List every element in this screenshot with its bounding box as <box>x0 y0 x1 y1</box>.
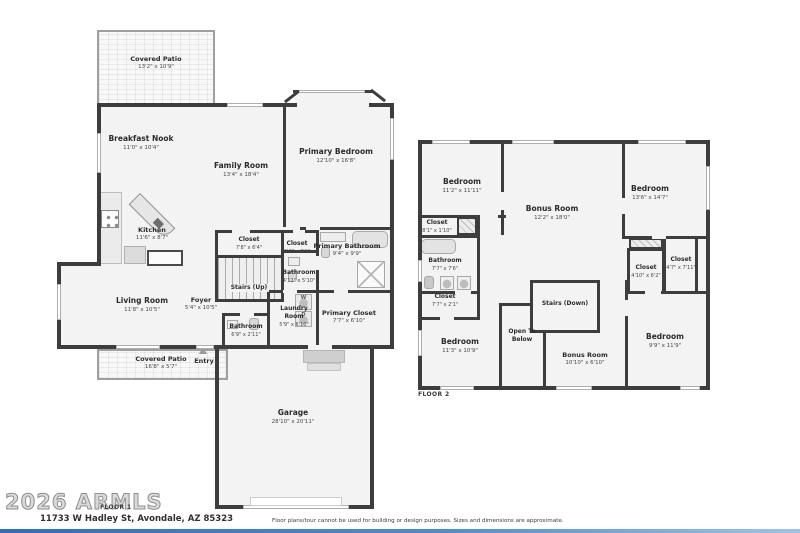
bay-window <box>299 90 365 93</box>
door-gap <box>645 291 661 294</box>
sink-icon <box>457 276 471 290</box>
window <box>556 386 592 390</box>
wall <box>97 103 297 107</box>
garage-step <box>307 363 341 371</box>
garage-door-inset <box>250 497 342 506</box>
window <box>116 345 160 349</box>
toilet-icon <box>424 276 434 289</box>
door-gap <box>293 230 305 233</box>
bottom-accent-bar <box>0 529 800 533</box>
room-label-breakfast-nook: Breakfast Nook 11'0" x 10'4" <box>91 134 191 152</box>
room-label-stairs-down: Stairs (Down) <box>532 290 598 311</box>
window <box>390 118 394 160</box>
room-label-hall-closet: Closet 7'8" x 6'4" <box>219 236 279 251</box>
vanity-icon <box>288 257 300 266</box>
washer-label: W <box>295 295 312 301</box>
room-label-covered-patio-top: Covered Patio 13'2" x 10'9" <box>106 55 206 72</box>
window <box>227 103 263 107</box>
property-address: 11733 W Hadley St, Avondale, AZ 85323 <box>40 514 233 524</box>
room-label-entry: Entry <box>186 357 222 365</box>
garage-entry-door-gap <box>308 345 332 349</box>
window <box>432 140 470 144</box>
door-gap <box>480 215 498 218</box>
room-label-closet-left: Closet 8'1" x 1'10" <box>408 219 466 234</box>
door-gap <box>232 230 250 233</box>
room-label-bonus-room: Bonus Room 12'2" x 18'0" <box>502 204 602 222</box>
room-label-primary-bathroom: Primary Bathroom 9'4" x 9'9" <box>307 242 387 259</box>
room-label-stairs-up: Stairs (Up) <box>218 274 280 295</box>
door-gap <box>240 313 254 316</box>
fridge-icon <box>124 246 146 264</box>
room-label-bonus-room-b: Bonus Room 10'10" x 6'10" <box>535 351 635 368</box>
room-label-kitchen: Kitchen 11'6" x 8'7" <box>112 226 192 243</box>
room-label-bedroom-tl: Bedroom 11'2" x 11'11" <box>412 177 512 195</box>
window <box>706 166 710 210</box>
bay-window-fill <box>295 92 371 106</box>
kitchen-peninsula <box>147 250 183 266</box>
room-label-closet-left2: Closet 7'7" x 2'1" <box>416 293 474 308</box>
room-label-primary-closet: Primary Closet 7'7" x 6'10" <box>309 309 389 326</box>
door-gap <box>334 290 348 293</box>
bay-wall <box>370 89 386 102</box>
window <box>680 386 700 390</box>
bathtub-icon <box>421 239 456 254</box>
wall <box>267 290 270 349</box>
front-door <box>196 345 214 349</box>
armls-branding: 2026 ARMLS <box>5 490 163 514</box>
room-label-primary-bedroom: Primary Bedroom 12'10" x 16'8" <box>286 147 386 165</box>
floorplan-page: W D Covered Patio 13'2" x 10'9" Breakfas… <box>0 0 800 533</box>
door-gap <box>306 227 320 230</box>
room-label-garage: Garage 28'10" x 20'11" <box>243 408 343 426</box>
door-gap <box>625 300 628 316</box>
vanity-icon <box>320 232 346 242</box>
wall <box>57 345 394 349</box>
closet-hatch-strip <box>629 238 663 249</box>
garage-wall <box>215 345 219 509</box>
window <box>512 140 554 144</box>
room-label-hall-bathroom: Bathroom 4'11" x 5'10" <box>277 269 321 284</box>
room-label-foyer: Foyer 5'4" x 10'5" <box>171 296 231 313</box>
disclaimer-text: Floor plans/tour cannot be used for buil… <box>272 518 564 524</box>
wall <box>499 303 533 306</box>
wall <box>477 215 480 320</box>
room-label-family-room: Family Room 13'4" x 18'4" <box>191 161 291 179</box>
door-gap <box>283 290 297 293</box>
wall <box>418 235 480 238</box>
window <box>440 386 474 390</box>
garage-fill <box>217 347 372 507</box>
door-gap <box>440 317 454 320</box>
room-label-bedroom-br: Bedroom 9'9" x 11'9" <box>615 332 715 350</box>
room-label-small-bathroom: Bathroom 6'9" x 2'11" <box>216 323 276 338</box>
wall <box>215 255 284 258</box>
garage-wall <box>370 345 374 509</box>
wall <box>57 262 101 266</box>
room-label-bedroom-tr: Bedroom 13'6" x 14'7" <box>600 184 700 202</box>
room-label-closet-r2: Closet 4'7" x 7'11" <box>663 256 699 271</box>
wall <box>97 103 101 266</box>
room-label-bedroom-bl: Bedroom 11'3" x 10'9" <box>410 337 510 355</box>
shower-icon <box>357 261 385 288</box>
window <box>638 140 686 144</box>
room-label-bathroom2: Bathroom 7'7" x 7'6" <box>417 257 473 272</box>
garage-step <box>303 350 345 363</box>
door-gap <box>652 236 666 239</box>
window <box>57 284 61 320</box>
floor2-tag: FLOOR 2 <box>418 391 450 398</box>
room-label-laundry-room: Laundry Room 5'9" x 6'10" <box>275 305 313 328</box>
floor1-tag: FLOOR 1 <box>100 504 132 511</box>
sink-icon <box>440 276 454 290</box>
